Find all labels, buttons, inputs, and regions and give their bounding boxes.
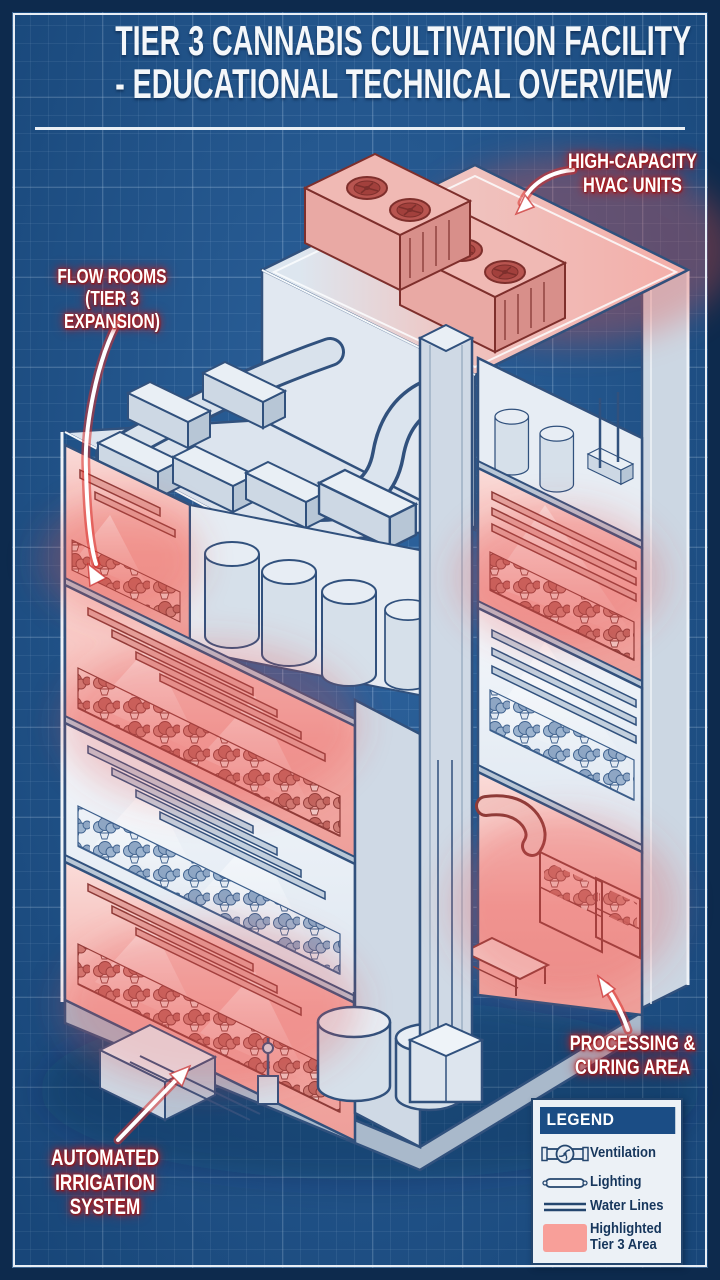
title-underline <box>35 127 685 130</box>
ventilation-icon <box>540 1141 590 1167</box>
legend-row-tier3-area: Highlighted Tier 3 Area <box>540 1222 674 1254</box>
legend-label-tier3-area: Highlighted Tier 3 Area <box>590 1222 662 1253</box>
callout-flow-rooms: FLOW ROOMS (TIER 3 EXPANSION) <box>42 266 182 333</box>
infographic-page: { "title": { "line1": "TIER 3 CANNABIS C… <box>0 0 720 1280</box>
water-lines-icon <box>540 1200 590 1214</box>
tier3-area-swatch <box>540 1222 590 1254</box>
legend-label-lighting: Lighting <box>590 1175 641 1191</box>
callout-irrigation-system: AUTOMATED IRRIGATION SYSTEM <box>47 1146 164 1220</box>
elevator-car <box>410 1024 482 1102</box>
legend-label-ventilation: Ventilation <box>590 1146 656 1162</box>
elevator-shaft <box>410 325 482 1102</box>
legend-box: LEGEND Ventilation Lighting <box>531 1098 683 1265</box>
title-block: TIER 3 CANNABIS CULTIVATION FACILITY - E… <box>0 20 720 106</box>
lighting-icon <box>540 1174 590 1192</box>
legend-row-ventilation: Ventilation <box>540 1141 674 1167</box>
callout-hvac-units: HIGH-CAPACITY HVAC UNITS <box>564 150 701 197</box>
legend-label-water-lines: Water Lines <box>590 1199 663 1215</box>
legend-row-lighting: Lighting <box>540 1174 674 1192</box>
legend-row-water-lines: Water Lines <box>540 1199 674 1215</box>
legend-title: LEGEND <box>540 1107 675 1134</box>
callout-processing-area: PROCESSING & CURING AREA <box>568 1032 697 1079</box>
title-line-1: TIER 3 CANNABIS CULTIVATION FACILITY <box>115 20 605 63</box>
title-line-2: - EDUCATIONAL TECHNICAL OVERVIEW <box>115 63 605 106</box>
